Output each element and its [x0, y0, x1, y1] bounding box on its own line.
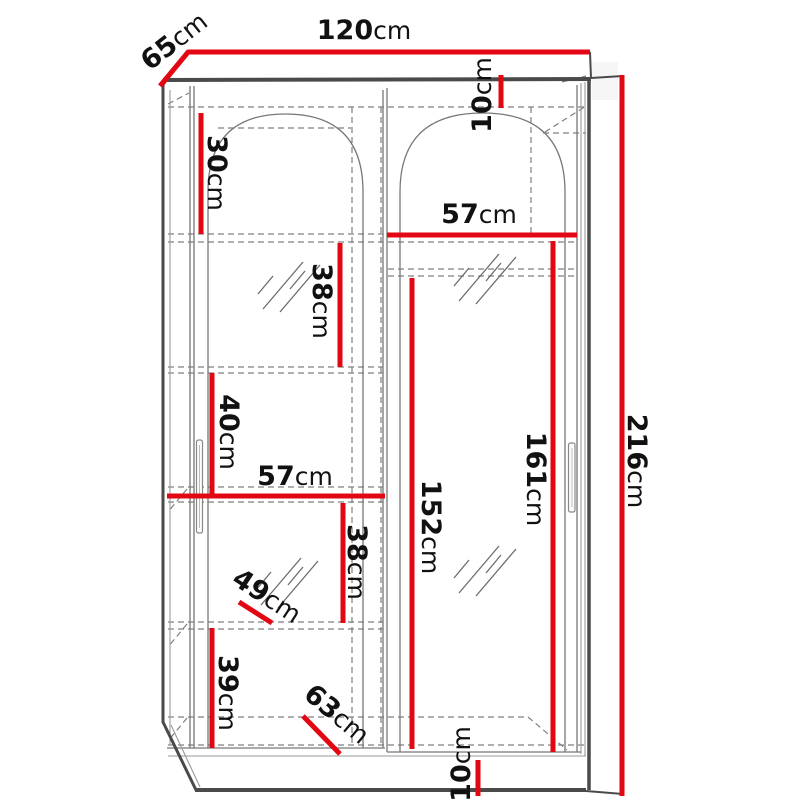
dimension-label-hanging-height: 152cm — [416, 480, 447, 574]
wardrobe-dimension-diagram: 120cm65cm10cm30cm57cm38cm40cm57cm38cm49c… — [0, 0, 788, 811]
dimension-label-shelf-height-lower: 38cm — [342, 524, 373, 600]
side-shadow — [592, 62, 618, 100]
dimension-base-height: 10cm — [446, 726, 479, 802]
dimension-total-height: 216cm — [622, 75, 653, 796]
dimension-label-top-panel-height: 10cm — [467, 57, 498, 133]
dimension-label-shelf-height-upper: 38cm — [307, 263, 338, 339]
dimension-label-top-shelf-height: 30cm — [202, 135, 233, 211]
dimension-label-base-height: 10cm — [446, 726, 477, 802]
dimension-label-shelf-height-mid: 40cm — [214, 394, 245, 470]
dimension-label-right-section-width: 57cm — [441, 199, 517, 230]
dimension-total-width: 120cm — [188, 15, 590, 53]
dimension-label-door-panel-height: 161cm — [521, 432, 552, 526]
dimension-label-total-height: 216cm — [622, 414, 653, 508]
dimension-label-bottom-shelf-height: 39cm — [213, 655, 244, 731]
left-door-handle-icon — [197, 440, 203, 533]
dimension-top-panel-height: 10cm — [467, 57, 502, 133]
dimension-label-left-section-width: 57cm — [257, 461, 333, 492]
dimension-label-total-width: 120cm — [317, 15, 411, 46]
wardrobe-drawing: 120cm65cm10cm30cm57cm38cm40cm57cm38cm49c… — [0, 0, 788, 811]
right-door-handle-icon — [569, 443, 576, 512]
